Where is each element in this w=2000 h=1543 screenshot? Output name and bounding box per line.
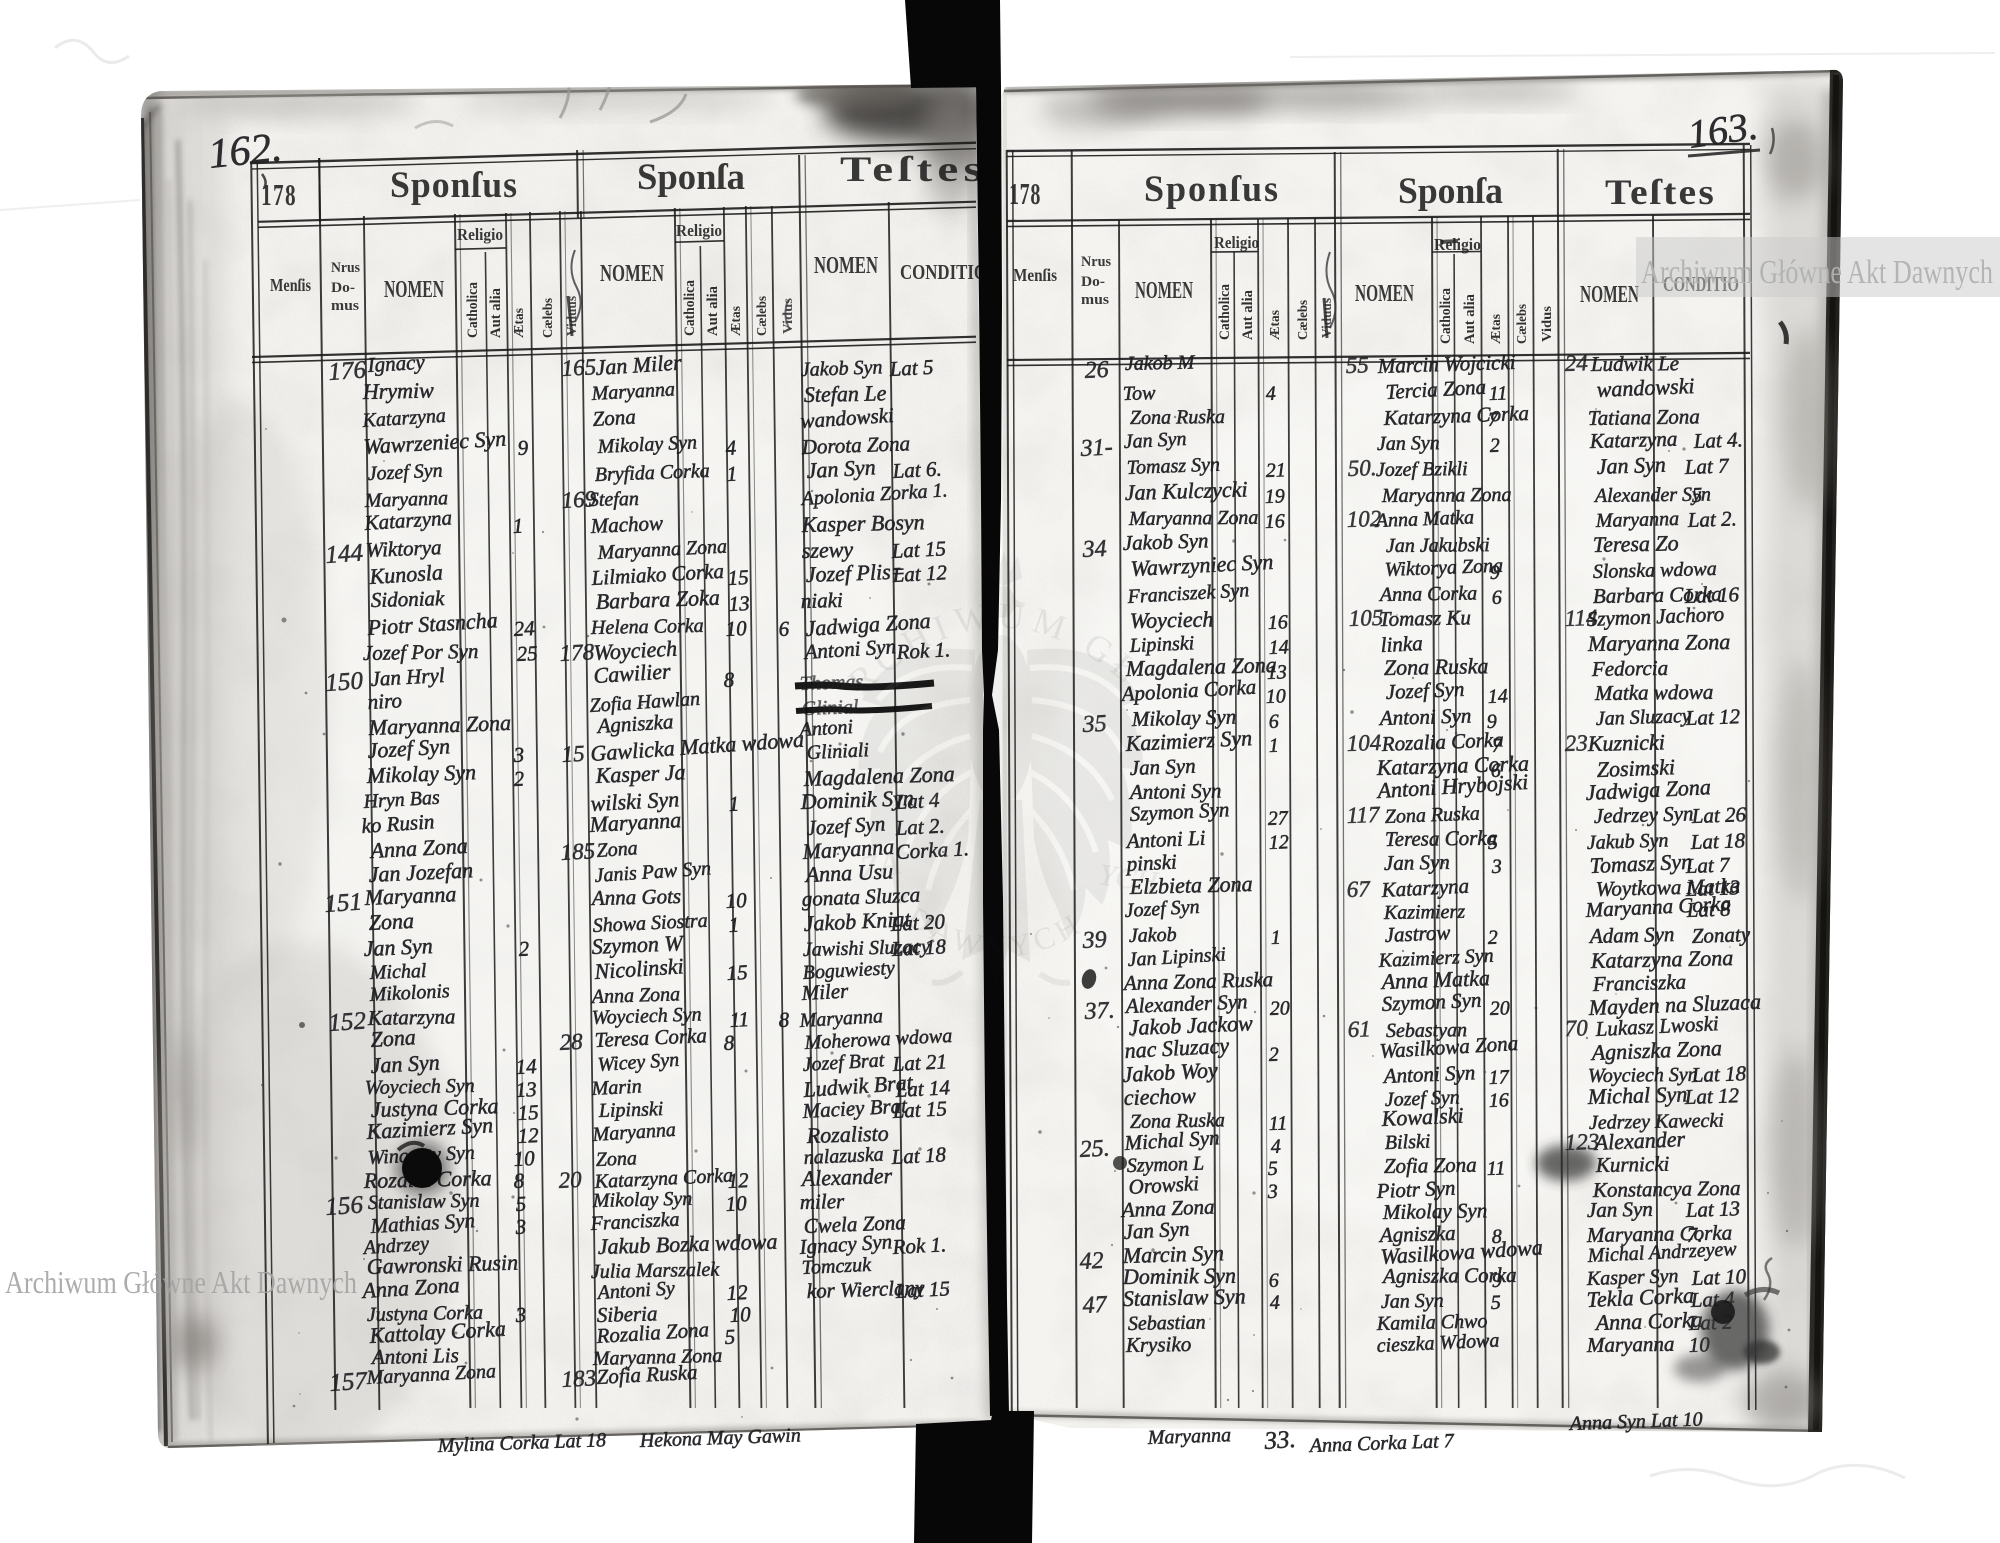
svg-text:Lat 12: Lat 12 [891, 560, 948, 587]
svg-text:Teſtes: Teſtes [840, 149, 987, 189]
svg-text:10: 10 [729, 1302, 752, 1327]
svg-text:ko Rusin: ko Rusin [361, 809, 435, 838]
svg-text:Jozef Plis=: Jozef Plis= [805, 558, 906, 587]
svg-text:Nrus: Nrus [331, 260, 360, 276]
svg-text:Maryanna: Maryanna [1595, 508, 1680, 532]
svg-text:Lat 26: Lat 26 [1690, 802, 1747, 828]
svg-text:157: 157 [329, 1367, 370, 1397]
svg-text:Religio: Religio [676, 221, 722, 240]
svg-text:Cawilier: Cawilier [593, 658, 672, 688]
svg-text:Anna Matka: Anna Matka [1373, 506, 1474, 532]
svg-text:Teresa Zo: Teresa Zo [1593, 530, 1679, 557]
svg-text:26: 26 [1084, 357, 1109, 384]
svg-text:9: 9 [517, 435, 529, 460]
svg-text:28: 28 [559, 1029, 584, 1055]
svg-text:1: 1 [728, 912, 740, 937]
svg-text:NOMEN: NOMEN [384, 277, 444, 303]
svg-text:Cælebs: Cælebs [1515, 303, 1530, 344]
svg-text:niro: niro [367, 688, 402, 714]
svg-text:1: 1 [726, 461, 738, 486]
svg-text:Anna Corka: Anna Corka [1593, 1307, 1703, 1335]
svg-text:12: 12 [517, 1123, 540, 1148]
svg-text:Aut alia: Aut alia [705, 286, 721, 336]
svg-text:1: 1 [1270, 927, 1281, 949]
svg-text:Zona Ruska: Zona Ruska [1130, 406, 1225, 429]
svg-text:Tow: Tow [1123, 382, 1157, 405]
svg-text:178: 178 [559, 639, 595, 666]
svg-text:Lat 18: Lat 18 [890, 1142, 947, 1169]
svg-text:3: 3 [512, 742, 525, 767]
svg-text:33.: 33. [1263, 1426, 1297, 1455]
svg-text:Jakob Woy: Jakob Woy [1122, 1057, 1218, 1087]
svg-text:Religio: Religio [1214, 233, 1259, 252]
svg-text:CONDITIO: CONDITIO [900, 260, 987, 284]
svg-text:Mikolonis: Mikolonis [368, 980, 450, 1006]
svg-text:11: 11 [1486, 1157, 1505, 1180]
svg-text:Rok 1.: Rok 1. [891, 1232, 947, 1259]
svg-text:Maryanna: Maryanna [588, 807, 682, 837]
svg-text:10: 10 [725, 1191, 748, 1216]
svg-text:Jan Syn: Jan Syn [363, 933, 433, 961]
svg-text:117: 117 [1346, 802, 1381, 828]
svg-text:Sponſus: Sponſus [390, 165, 518, 206]
svg-text:Katarzyna: Katarzyna [1380, 874, 1470, 902]
svg-text:NOMEN: NOMEN [1580, 282, 1639, 308]
svg-text:Catholica: Catholica [1217, 284, 1233, 340]
svg-text:Antoni Syn: Antoni Syn [1381, 1060, 1475, 1088]
svg-text:Ludwik Le: Ludwik Le [1590, 351, 1679, 376]
svg-text:185: 185 [560, 838, 596, 865]
svg-text:NOMEN: NOMEN [1355, 281, 1414, 307]
svg-text:8: 8 [723, 1030, 735, 1055]
svg-text:Anna Syn Lat 10: Anna Syn Lat 10 [1567, 1408, 1702, 1435]
svg-text:61: 61 [1347, 1016, 1371, 1042]
svg-text:14: 14 [1487, 685, 1508, 708]
svg-text:Lat 12: Lat 12 [1684, 704, 1741, 730]
svg-text:Jakob M: Jakob M [1125, 351, 1196, 375]
svg-text:mus: mus [331, 298, 359, 314]
svg-text:4: 4 [725, 435, 737, 460]
svg-text:150: 150 [325, 667, 365, 697]
svg-text:Antoni Li: Antoni Li [1124, 826, 1206, 853]
svg-text:Menſis: Menſis [1013, 265, 1057, 285]
svg-text:Michal Syn: Michal Syn [1586, 1081, 1687, 1109]
svg-text:Lat 13: Lat 13 [1684, 1196, 1740, 1222]
svg-text:15: 15 [726, 960, 748, 985]
svg-text:Ætas: Ætas [1268, 309, 1283, 340]
svg-text:20: 20 [1269, 997, 1290, 1020]
svg-text:Stefan Le: Stefan Le [804, 380, 887, 407]
svg-text:11: 11 [1488, 382, 1507, 405]
svg-text:Jan Syn: Jan Syn [1123, 1216, 1190, 1244]
svg-text:3: 3 [514, 1302, 527, 1327]
svg-text:niaki: niaki [800, 588, 843, 613]
svg-text:34: 34 [1081, 536, 1107, 563]
svg-text:Jan Syn: Jan Syn [1587, 1197, 1653, 1222]
svg-text:23: 23 [1564, 730, 1588, 756]
svg-text:Jan Syn: Jan Syn [370, 1049, 440, 1078]
svg-text:Aut alia: Aut alia [488, 288, 504, 338]
svg-text:Maryanna: Maryanna [363, 881, 457, 910]
svg-text:2: 2 [1489, 435, 1500, 457]
svg-text:183: 183 [561, 1365, 597, 1392]
svg-text:55: 55 [1345, 352, 1369, 378]
svg-text:wandowski: wandowski [1596, 373, 1695, 402]
svg-text:Kasper Bosyn: Kasper Bosyn [801, 509, 925, 537]
svg-text:Katarzyna Zona: Katarzyna Zona [1590, 945, 1734, 973]
svg-text:Maryanna: Maryanna [1586, 1332, 1675, 1357]
svg-text:Lipinski: Lipinski [597, 1098, 663, 1122]
svg-text:5: 5 [1490, 1292, 1501, 1314]
svg-text:16: 16 [1267, 611, 1288, 634]
svg-text:165: 165 [561, 354, 597, 381]
svg-text:13: 13 [728, 591, 750, 616]
svg-text:linka: linka [1380, 631, 1423, 657]
svg-text:8: 8 [513, 1168, 525, 1193]
svg-text:Lat 15: Lat 15 [891, 1096, 947, 1123]
svg-text:4: 4 [1269, 1292, 1280, 1314]
svg-text:Mikolay Syn: Mikolay Syn [365, 759, 476, 788]
svg-text:Aut alia: Aut alia [1462, 294, 1478, 344]
svg-text:Machow: Machow [589, 511, 663, 538]
svg-text:Sponſus: Sponſus [1144, 169, 1280, 210]
svg-text:70: 70 [1564, 1015, 1588, 1041]
svg-text:17: 17 [1488, 1066, 1510, 1089]
svg-text:Bilski: Bilski [1384, 1130, 1430, 1154]
svg-text:25.: 25. [1079, 1135, 1110, 1163]
svg-text:Teſtes: Teſtes [1605, 172, 1716, 212]
svg-text:Catholica: Catholica [682, 280, 698, 336]
svg-text:Zona: Zona [592, 404, 637, 431]
svg-text:Lat 18: Lat 18 [1689, 828, 1746, 854]
svg-text:Jan Syn: Jan Syn [1377, 432, 1440, 455]
svg-text:Zona: Zona [596, 837, 639, 862]
svg-text:Jan Syn: Jan Syn [806, 454, 876, 483]
svg-text:Zofia Zona: Zofia Zona [1384, 1153, 1477, 1178]
svg-text:15: 15 [561, 741, 585, 767]
svg-text:Fedorcia: Fedorcia [1591, 656, 1669, 681]
svg-text:Maryanna Zona: Maryanna Zona [1381, 484, 1512, 507]
svg-text:Sidoniak: Sidoniak [370, 586, 445, 612]
svg-text:Religio: Religio [1434, 235, 1481, 254]
svg-text:Lat 2.: Lat 2. [1686, 506, 1737, 532]
svg-text:NOMEN: NOMEN [600, 261, 664, 287]
svg-text:67: 67 [1346, 876, 1371, 902]
svg-text:szewy: szewy [801, 537, 853, 563]
svg-text:Sponſa: Sponſa [637, 157, 745, 198]
svg-text:8: 8 [778, 1007, 790, 1032]
svg-text:156: 156 [325, 1191, 365, 1221]
svg-text:27: 27 [1267, 807, 1289, 830]
svg-text:16: 16 [1488, 1089, 1509, 1112]
svg-text:6: 6 [1491, 587, 1502, 609]
svg-text:Jozef Por Syn: Jozef Por Syn [363, 639, 479, 665]
svg-text:Szymon Syn: Szymon Syn [1129, 797, 1230, 826]
svg-text:Kurnicki: Kurnicki [1595, 1152, 1670, 1177]
svg-text:Cælebs: Cælebs [755, 295, 770, 336]
svg-text:NOMEN: NOMEN [1135, 278, 1193, 304]
svg-text:Ætas: Ætas [1489, 313, 1504, 344]
svg-text:Tomasz Syn: Tomasz Syn [1589, 849, 1692, 878]
svg-text:Nrus: Nrus [1081, 254, 1111, 270]
svg-text:21: 21 [1265, 459, 1286, 482]
svg-text:Barbara Zoka: Barbara Zoka [595, 585, 720, 614]
svg-text:Matka wdowa: Matka wdowa [1594, 680, 1714, 705]
svg-text:5: 5 [1267, 1158, 1278, 1180]
svg-text:Jastrow: Jastrow [1384, 920, 1451, 947]
svg-text:Helena Corka: Helena Corka [590, 615, 704, 639]
svg-text:Jan Kulczycki: Jan Kulczycki [1124, 476, 1247, 505]
svg-text:Jozef Syn: Jozef Syn [1385, 677, 1465, 704]
svg-text:Archiwum Główne Akt Dawnych: Archiwum Główne Akt Dawnych [1641, 254, 1993, 291]
svg-text:Ætas: Ætas [729, 305, 744, 336]
svg-text:Mikolay Syn: Mikolay Syn [596, 431, 697, 458]
svg-text:152: 152 [328, 1007, 367, 1037]
svg-text:Jan Syn: Jan Syn [1384, 850, 1450, 875]
svg-text:14: 14 [515, 1054, 538, 1079]
svg-text:12: 12 [1268, 831, 1289, 854]
svg-text:10: 10 [1265, 685, 1286, 708]
svg-text:42: 42 [1079, 1248, 1104, 1275]
svg-text:Maryanna Zona: Maryanna Zona [1587, 629, 1731, 656]
svg-text:Alexander: Alexander [799, 1163, 893, 1191]
svg-text:Lat 12: Lat 12 [1683, 1083, 1740, 1109]
svg-text:Zona Ruska: Zona Ruska [1384, 653, 1489, 680]
svg-text:Lat 8: Lat 8 [1685, 896, 1731, 922]
svg-text:5: 5 [724, 1324, 736, 1349]
svg-text:Catholica: Catholica [465, 282, 481, 338]
svg-text:Lat 5: Lat 5 [888, 355, 934, 381]
svg-text:Slonska wdowa: Slonska wdowa [1593, 558, 1717, 583]
svg-text:47: 47 [1082, 1292, 1108, 1319]
svg-text:Jakob Syn: Jakob Syn [1122, 528, 1208, 555]
svg-text:104: 104 [1346, 730, 1381, 756]
svg-text:Jozef Syn: Jozef Syn [1124, 896, 1200, 922]
svg-text:5: 5 [1691, 483, 1702, 507]
svg-text:9: 9 [1491, 1270, 1502, 1292]
svg-text:3: 3 [1490, 856, 1502, 878]
svg-text:16: 16 [1264, 510, 1285, 533]
svg-text:Jakob Syn: Jakob Syn [800, 356, 882, 381]
svg-text:Cælebs: Cælebs [541, 297, 556, 338]
svg-text:Woyciech: Woyciech [1130, 606, 1214, 633]
svg-text:8: 8 [723, 667, 735, 692]
svg-text:mus: mus [1081, 292, 1109, 308]
svg-text:6: 6 [1268, 711, 1279, 733]
svg-text:151: 151 [324, 888, 363, 918]
svg-text:10: 10 [725, 616, 748, 641]
svg-text:Zonaty: Zonaty [1691, 922, 1751, 948]
svg-text:169: 169 [561, 486, 597, 513]
svg-text:Teresa Corka: Teresa Corka [1385, 826, 1498, 851]
svg-text:Alexander: Alexander [1592, 1126, 1686, 1155]
svg-text:Bryfida Corka: Bryfida Corka [594, 460, 710, 486]
svg-text:Lat 15: Lat 15 [894, 1276, 950, 1303]
svg-text:6: 6 [1490, 760, 1501, 782]
svg-text:Anna Gots: Anna Gots [590, 884, 682, 910]
svg-text:Jozef Syn: Jozef Syn [367, 733, 451, 763]
svg-text:Krysiko: Krysiko [1125, 1332, 1192, 1357]
svg-text:Katarzyna Corka: Katarzyna Corka [1382, 401, 1529, 430]
svg-text:Stanislaw Syn: Stanislaw Syn [1123, 1283, 1246, 1311]
svg-text:20: 20 [558, 1167, 583, 1193]
svg-text:Katarzyna: Katarzyna [1588, 427, 1677, 453]
svg-text:2: 2 [518, 936, 530, 961]
svg-text:Jozef Syn: Jozef Syn [367, 460, 443, 485]
svg-text:Antoni Syn: Antoni Syn [1377, 703, 1471, 730]
svg-text:Tomasz Ku: Tomasz Ku [1379, 605, 1471, 631]
svg-text:9: 9 [1489, 562, 1500, 584]
svg-text:Ignacy: Ignacy [366, 350, 426, 377]
svg-text:Jan Syn: Jan Syn [1123, 428, 1187, 453]
svg-text:Marin: Marin [590, 1075, 642, 1100]
svg-text:1: 1 [512, 513, 524, 538]
svg-text:144: 144 [325, 539, 364, 569]
svg-text:Hrymiw: Hrymiw [362, 377, 435, 404]
svg-text:Wiktorya: Wiktorya [365, 535, 442, 562]
svg-text:Anna Corka: Anna Corka [1378, 582, 1478, 606]
svg-text:Do-: Do- [331, 280, 355, 296]
svg-text:Catholica: Catholica [1438, 288, 1454, 344]
svg-text:Szymon Syn: Szymon Syn [1381, 988, 1482, 1016]
svg-text:24: 24 [513, 616, 536, 641]
svg-text:11: 11 [729, 1007, 750, 1032]
svg-text:9: 9 [1486, 711, 1497, 733]
svg-text:Zona: Zona [595, 1147, 637, 1171]
svg-text:miler: miler [800, 1189, 846, 1214]
svg-text:4: 4 [1265, 383, 1276, 405]
svg-text:Zona Ruska: Zona Ruska [1384, 803, 1480, 828]
svg-text:6: 6 [1268, 1270, 1279, 1292]
svg-text:Religio: Religio [457, 225, 503, 244]
svg-text:1: 1 [1268, 735, 1279, 757]
svg-text:Tomczuk: Tomczuk [801, 1254, 872, 1279]
svg-text:Marcin Wojcicki: Marcin Wojcicki [1376, 350, 1516, 378]
svg-text:2: 2 [1487, 927, 1498, 949]
svg-text:Michal: Michal [368, 960, 427, 984]
svg-text:Maryanna Zona: Maryanna Zona [1128, 507, 1259, 530]
svg-text:Adam Syn: Adam Syn [1588, 922, 1675, 948]
svg-text:Jozef Bzikli: Jozef Bzikli [1376, 458, 1468, 481]
svg-text:13: 13 [1266, 661, 1287, 684]
svg-text:19: 19 [1264, 485, 1285, 508]
svg-text:5: 5 [515, 1191, 527, 1216]
svg-text:Kuznicki: Kuznicki [1587, 729, 1666, 756]
svg-text:4: 4 [1270, 1136, 1281, 1158]
svg-text:Ætas: Ætas [512, 307, 527, 338]
svg-text:Miler: Miler [800, 979, 850, 1005]
svg-text:10: 10 [513, 1146, 536, 1171]
svg-text:24: 24 [1564, 350, 1588, 376]
svg-text:Lat 7: Lat 7 [1683, 453, 1730, 479]
svg-text:5: 5 [1487, 832, 1498, 854]
svg-text:Cælebs: Cælebs [1296, 299, 1311, 340]
svg-text:ciechow: ciechow [1123, 1083, 1196, 1110]
svg-text:Kasper Ja: Kasper Ja [594, 759, 686, 788]
svg-text:8: 8 [1491, 1226, 1502, 1248]
svg-text:162.: 162. [206, 125, 284, 178]
svg-text:Jan Sluzacy: Jan Sluzacy [1595, 705, 1691, 730]
svg-text:Vidus: Vidus [1540, 305, 1555, 342]
svg-text:Zona: Zona [368, 908, 414, 935]
svg-text:Archiwum Główne Akt Dawnych: Archiwum Główne Akt Dawnych [5, 1264, 357, 1300]
svg-text:15: 15 [727, 565, 749, 590]
svg-text:2: 2 [1268, 1044, 1279, 1066]
svg-text:7: 7 [1491, 735, 1503, 757]
svg-text:Kowalski: Kowalski [1380, 1102, 1464, 1131]
svg-text:Kunosla: Kunosla [368, 559, 444, 589]
svg-text:10: 10 [725, 888, 748, 913]
svg-text:Sponſa: Sponſa [1398, 171, 1503, 212]
svg-text:50.: 50. [1347, 455, 1377, 481]
svg-text:Teresa Corka: Teresa Corka [594, 1023, 707, 1052]
svg-text:13: 13 [515, 1077, 537, 1102]
svg-text:7: 7 [1487, 409, 1499, 431]
svg-text:Lat 4.: Lat 4. [1692, 427, 1743, 453]
svg-text:6: 6 [778, 616, 790, 641]
svg-text:15: 15 [517, 1100, 539, 1125]
svg-text:Menſis: Menſis [270, 275, 311, 295]
svg-text:178: 178 [1009, 176, 1041, 211]
svg-text:NOMEN: NOMEN [814, 253, 878, 279]
svg-text:12: 12 [727, 1168, 750, 1193]
svg-text:Agniszka Zona: Agniszka Zona [1589, 1035, 1722, 1065]
svg-text:1: 1 [728, 791, 740, 816]
svg-text:Wiktorya Zona: Wiktorya Zona [1384, 555, 1503, 581]
svg-text:11: 11 [1268, 1112, 1287, 1135]
svg-text:3: 3 [514, 1214, 527, 1239]
svg-text:31-: 31- [1079, 434, 1113, 462]
svg-text:Do-: Do- [1081, 274, 1105, 290]
svg-text:Jan Syn: Jan Syn [1381, 1290, 1444, 1313]
svg-text:14: 14 [1268, 636, 1289, 659]
svg-text:Glinial: Glinial [801, 696, 859, 720]
svg-text:Jan Syn: Jan Syn [1596, 452, 1666, 479]
svg-text:2: 2 [513, 766, 525, 791]
svg-text:176: 176 [328, 356, 368, 386]
svg-text:Maryanna: Maryanna [1146, 1424, 1231, 1449]
svg-text:ZA: ZA [857, 845, 903, 888]
svg-text:20: 20 [1489, 997, 1510, 1020]
svg-text:Zona: Zona [370, 1024, 417, 1052]
svg-text:Aut alia: Aut alia [1240, 290, 1256, 340]
svg-text:Tatiana Zona: Tatiana Zona [1588, 404, 1700, 430]
svg-text:25: 25 [516, 641, 538, 666]
svg-text:Jan Jakubski: Jan Jakubski [1386, 534, 1490, 557]
svg-text:Jan Hryl: Jan Hryl [370, 663, 445, 691]
svg-text:Agniszka: Agniszka [595, 709, 674, 738]
svg-text:Jakob: Jakob [1129, 924, 1177, 947]
svg-text:Mikolay Syn: Mikolay Syn [1382, 1198, 1488, 1224]
svg-text:37.: 37. [1083, 997, 1115, 1025]
svg-text:3: 3 [1266, 1181, 1278, 1203]
svg-text:Tomasz Syn: Tomasz Syn [1126, 454, 1220, 479]
